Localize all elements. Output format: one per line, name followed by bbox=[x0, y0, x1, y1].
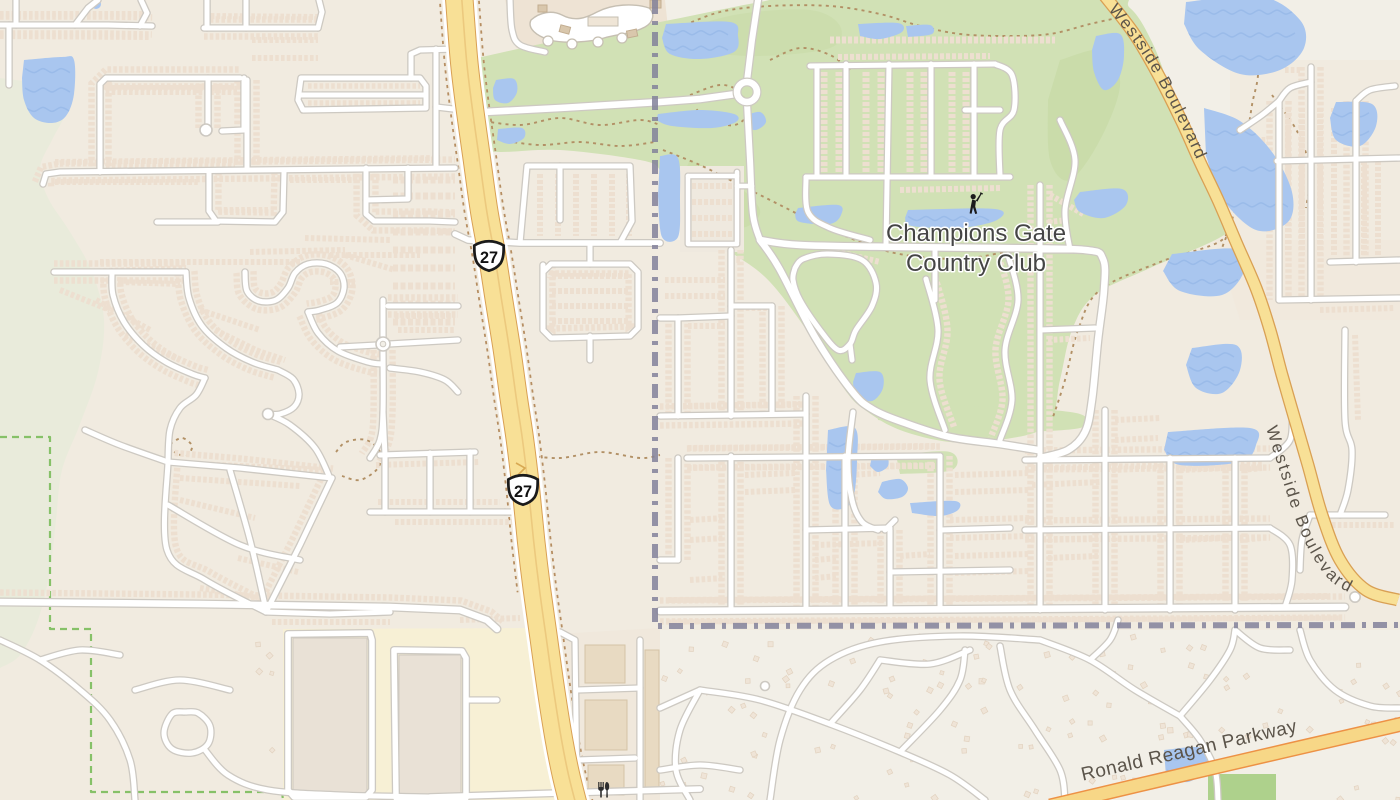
svg-text:Country Club: Country Club bbox=[906, 250, 1046, 277]
svg-text:27: 27 bbox=[514, 483, 532, 501]
svg-text:27: 27 bbox=[480, 249, 498, 267]
svg-text:Champions Gate: Champions Gate bbox=[886, 220, 1066, 247]
